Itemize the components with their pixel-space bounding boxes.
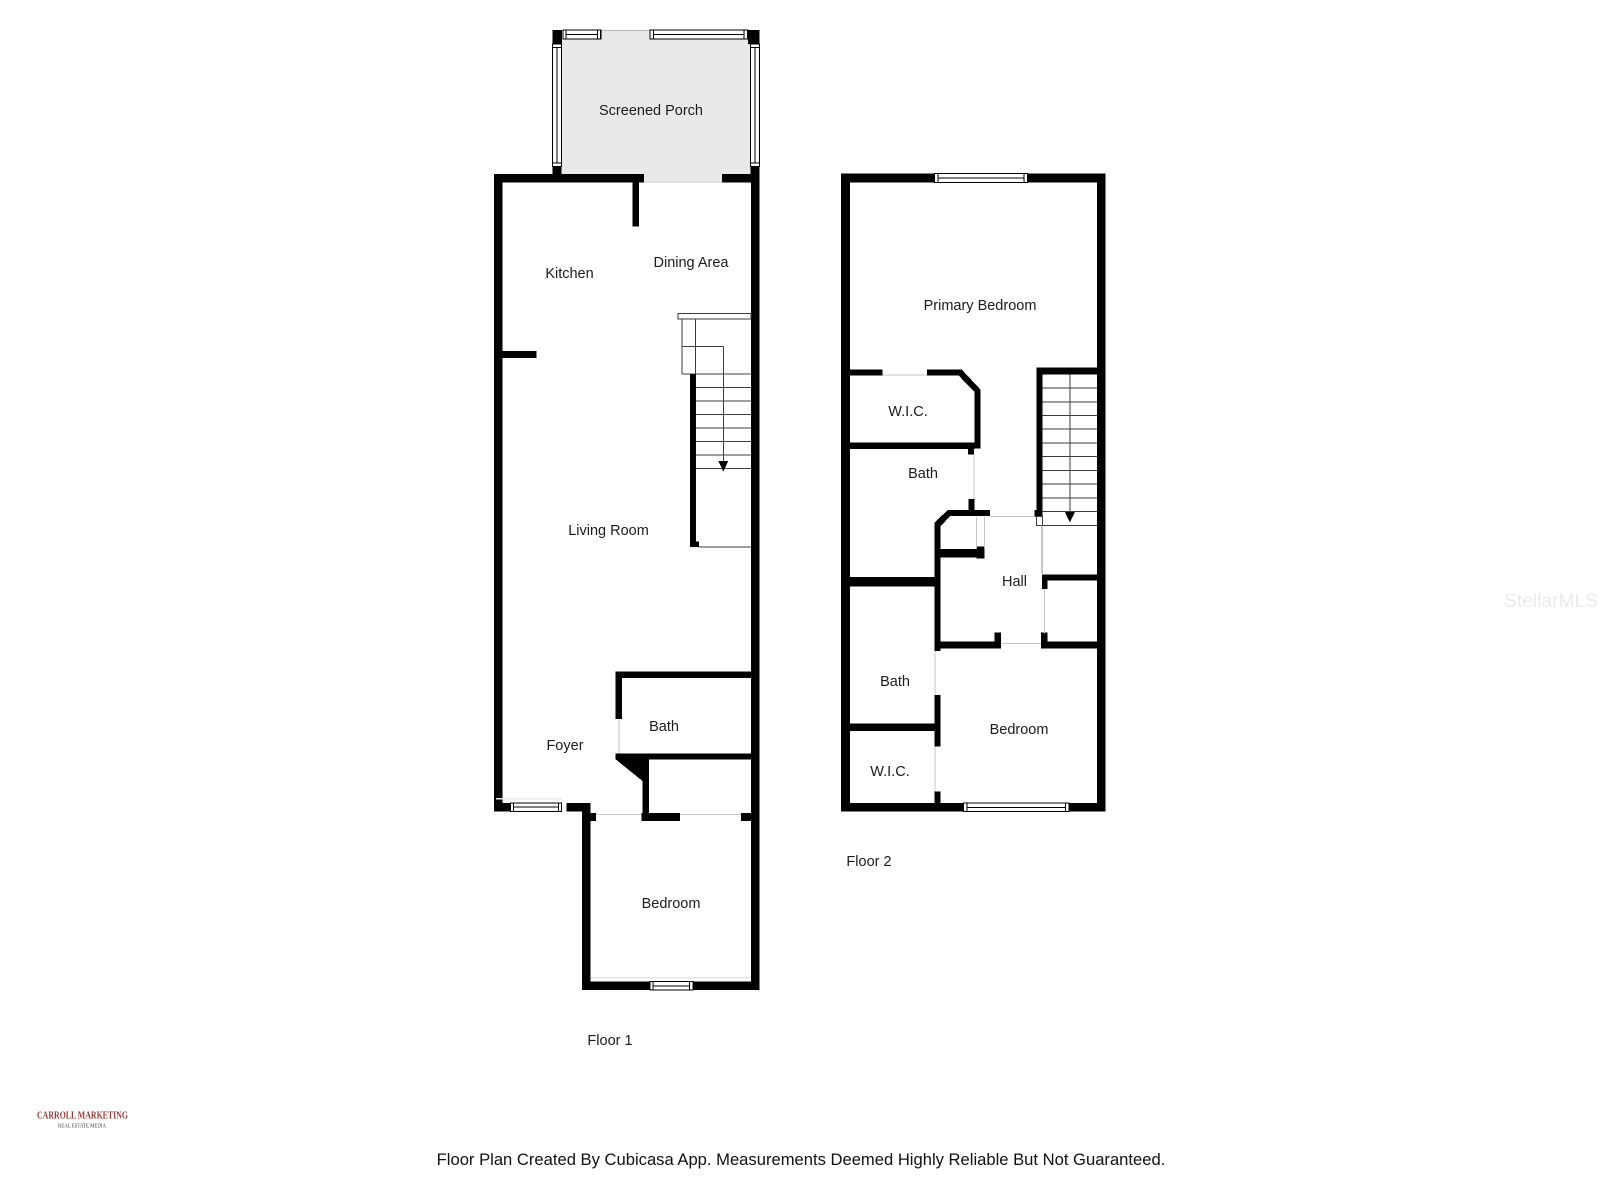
svg-text:Bedroom: Bedroom bbox=[990, 722, 1049, 738]
svg-text:Foyer: Foyer bbox=[546, 738, 583, 754]
svg-text:Bath: Bath bbox=[649, 719, 679, 735]
svg-text:Floor Plan Created By Cubicasa: Floor Plan Created By Cubicasa App. Meas… bbox=[437, 1150, 1166, 1169]
svg-text:Bath: Bath bbox=[880, 674, 910, 690]
svg-text:Kitchen: Kitchen bbox=[545, 266, 593, 282]
svg-text:Primary Bedroom: Primary Bedroom bbox=[924, 298, 1037, 314]
svg-text:CARROLL MARKETING: CARROLL MARKETING bbox=[37, 1111, 128, 1122]
svg-text:W.I.C.: W.I.C. bbox=[870, 764, 909, 780]
svg-text:W.I.C.: W.I.C. bbox=[888, 404, 927, 420]
svg-text:Dining Area: Dining Area bbox=[654, 255, 730, 271]
svg-text:Hall: Hall bbox=[1002, 574, 1027, 590]
svg-text:REAL ESTATE MEDIA: REAL ESTATE MEDIA bbox=[58, 1124, 107, 1130]
svg-text:Living Room: Living Room bbox=[568, 523, 649, 539]
svg-text:Floor 1: Floor 1 bbox=[587, 1033, 632, 1049]
svg-text:Screened Porch: Screened Porch bbox=[599, 103, 703, 119]
svg-text:StellarMLS: StellarMLS bbox=[1504, 591, 1598, 612]
svg-text:Bedroom: Bedroom bbox=[642, 896, 701, 912]
svg-text:Bath: Bath bbox=[908, 466, 938, 482]
svg-text:Floor 2: Floor 2 bbox=[846, 854, 891, 870]
